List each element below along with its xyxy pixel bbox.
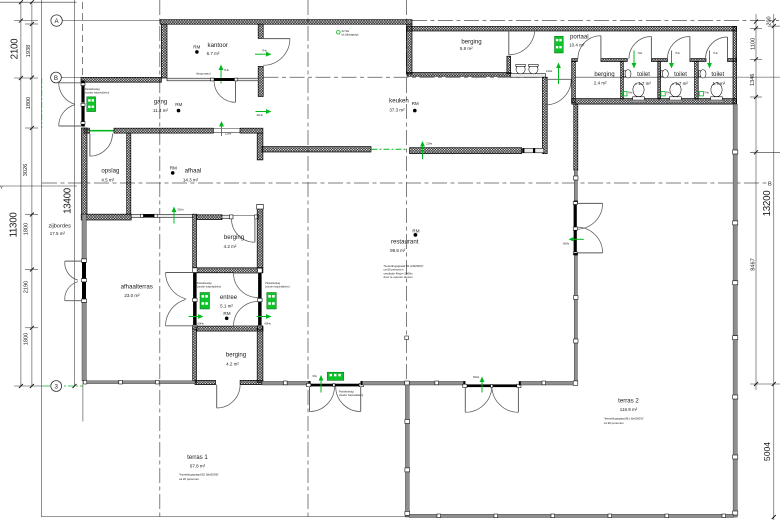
svg-text:*bezettingsgraad B1 (bbl2003)": *bezettingsgraad B1 (bbl2003)" (604, 416, 644, 420)
svg-text:gang: gang (154, 99, 168, 106)
svg-text:60Hs: 60Hs (473, 375, 480, 379)
svg-text:zijbordes: zijbordes (49, 223, 72, 229)
svg-text:21Hs: 21Hs (225, 132, 232, 136)
svg-text:portaal: portaal (570, 34, 589, 41)
svg-text:B: B (54, 75, 58, 82)
svg-text:keuken: keuken (389, 97, 409, 104)
svg-text:200: 200 (767, 16, 773, 25)
svg-text:4.5 m²: 4.5 m² (101, 177, 114, 182)
svg-text:(zonder hulpmiddelen): (zonder hulpmiddelen) (85, 92, 109, 95)
svg-text:7Hs: 7Hs (224, 68, 229, 72)
svg-text:terras 2: terras 2 (618, 397, 639, 404)
svg-text:1346: 1346 (750, 74, 756, 86)
svg-text:17.5 m²: 17.5 m² (50, 231, 66, 236)
svg-text:B: B (768, 182, 772, 188)
svg-text:restaurant: restaurant (391, 238, 419, 245)
svg-text:(zonder hulpmiddelen): (zonder hulpmiddelen) (339, 394, 363, 397)
svg-text:60Hs: 60Hs (198, 321, 205, 325)
svg-text:21Hs: 21Hs (257, 113, 264, 117)
svg-text:1.7 m²: 1.7 m² (638, 81, 651, 86)
svg-text:116.9 m²: 116.9 m² (620, 407, 638, 412)
svg-text:7Hs: 7Hs (638, 51, 643, 55)
svg-text:2190: 2190 (24, 281, 30, 293)
svg-text:1800: 1800 (26, 97, 32, 109)
svg-text:1800: 1800 (24, 223, 30, 235)
svg-text:toilet: toilet (674, 71, 687, 78)
svg-text:terras 1: terras 1 (187, 454, 208, 461)
svg-text:60s: 60s (313, 374, 318, 378)
svg-text:berging: berging (226, 351, 246, 358)
svg-text:99.5 m²: 99.5 m² (390, 248, 406, 253)
svg-text:kantoor: kantoor (208, 42, 228, 49)
svg-text:21Hs: 21Hs (177, 207, 184, 211)
svg-text:1.7 m²: 1.7 m² (675, 81, 688, 86)
svg-text:3: 3 (54, 383, 58, 390)
svg-text:8467: 8467 (751, 258, 757, 270)
svg-text:RM: RM (170, 165, 177, 170)
svg-text:2100: 2100 (10, 38, 21, 59)
svg-text:11300: 11300 (9, 212, 20, 238)
svg-text:67.8 m²: 67.8 m² (190, 463, 206, 468)
svg-text:door te openen deuren: door te openen deuren (384, 275, 414, 279)
svg-text:berging: berging (224, 234, 244, 241)
svg-text:5.8 m²: 5.8 m² (460, 46, 473, 51)
svg-text:RM: RM (412, 228, 419, 233)
svg-text:21Hs: 21Hs (426, 141, 433, 145)
svg-text:toilet: toilet (711, 71, 724, 78)
svg-text:opslag: opslag (101, 167, 119, 174)
svg-text:7Hs: 7Hs (628, 90, 633, 94)
svg-text:toilet: toilet (637, 71, 650, 78)
svg-text:entree: entree (220, 294, 238, 301)
svg-text:2x7Hs: 2x7Hs (342, 29, 350, 33)
svg-text:7Hs: 7Hs (675, 51, 680, 55)
svg-text:1100: 1100 (751, 38, 757, 50)
svg-text:RM: RM (193, 45, 200, 50)
svg-text:berging: berging (461, 39, 481, 46)
svg-text:(zonder hulpmiddelen): (zonder hulpmiddelen) (265, 285, 289, 288)
svg-text:berging: berging (594, 71, 614, 78)
svg-text:2.4 m²: 2.4 m² (594, 81, 607, 86)
svg-text:7Hs: 7Hs (704, 90, 709, 94)
svg-text:37.3 m²: 37.3 m² (389, 107, 405, 112)
svg-text:1938: 1938 (26, 45, 32, 57)
svg-text:10.4 m²: 10.4 m² (569, 43, 585, 48)
svg-text:(hoog raam): (hoog raam) (196, 71, 211, 75)
svg-text:uit (afzuigkap): uit (afzuigkap) (342, 32, 359, 36)
svg-text:afhaal: afhaal (185, 167, 202, 174)
svg-text:13200: 13200 (762, 190, 773, 217)
svg-text:60Hs: 60Hs (265, 321, 272, 325)
svg-text:60Hs: 60Hs (563, 242, 570, 246)
svg-text:RM: RM (223, 311, 230, 316)
svg-text:1800: 1800 (24, 333, 30, 345)
svg-text:4.2 m²: 4.2 m² (226, 361, 239, 366)
svg-text:RM: RM (412, 101, 419, 106)
svg-text:(zonder hulpmiddelen): (zonder hulpmiddelen) (197, 285, 221, 288)
svg-text:*bezettingsgraad B2 (bbl2003)": *bezettingsgraad B2 (bbl2003)" (179, 472, 219, 476)
svg-text:14.3 m²: 14.3 m² (183, 177, 199, 182)
svg-text:5.1 m²: 5.1 m² (220, 303, 233, 308)
svg-text:7Hs: 7Hs (666, 90, 671, 94)
svg-text:13400: 13400 (63, 187, 74, 214)
svg-text:ca 90 personen: ca 90 personen (604, 421, 624, 425)
svg-text:1.7 m²: 1.7 m² (712, 81, 725, 86)
svg-text:RM: RM (175, 102, 182, 107)
svg-text:23.0 m²: 23.0 m² (124, 293, 140, 298)
svg-text:11.4 m²: 11.4 m² (153, 108, 168, 113)
svg-text:4.2 m²: 4.2 m² (224, 244, 237, 249)
svg-text:7Hs: 7Hs (713, 51, 718, 55)
svg-text:3026: 3026 (23, 164, 29, 176)
svg-text:5004: 5004 (762, 442, 772, 461)
svg-text:7Hs: 7Hs (262, 48, 267, 52)
svg-text:afhaalterras: afhaalterras (121, 283, 153, 290)
svg-text:ca 20 personen: ca 20 personen (179, 477, 199, 481)
svg-text:21Hs: 21Hs (546, 69, 553, 73)
svg-text:6.7 m²: 6.7 m² (207, 51, 220, 56)
